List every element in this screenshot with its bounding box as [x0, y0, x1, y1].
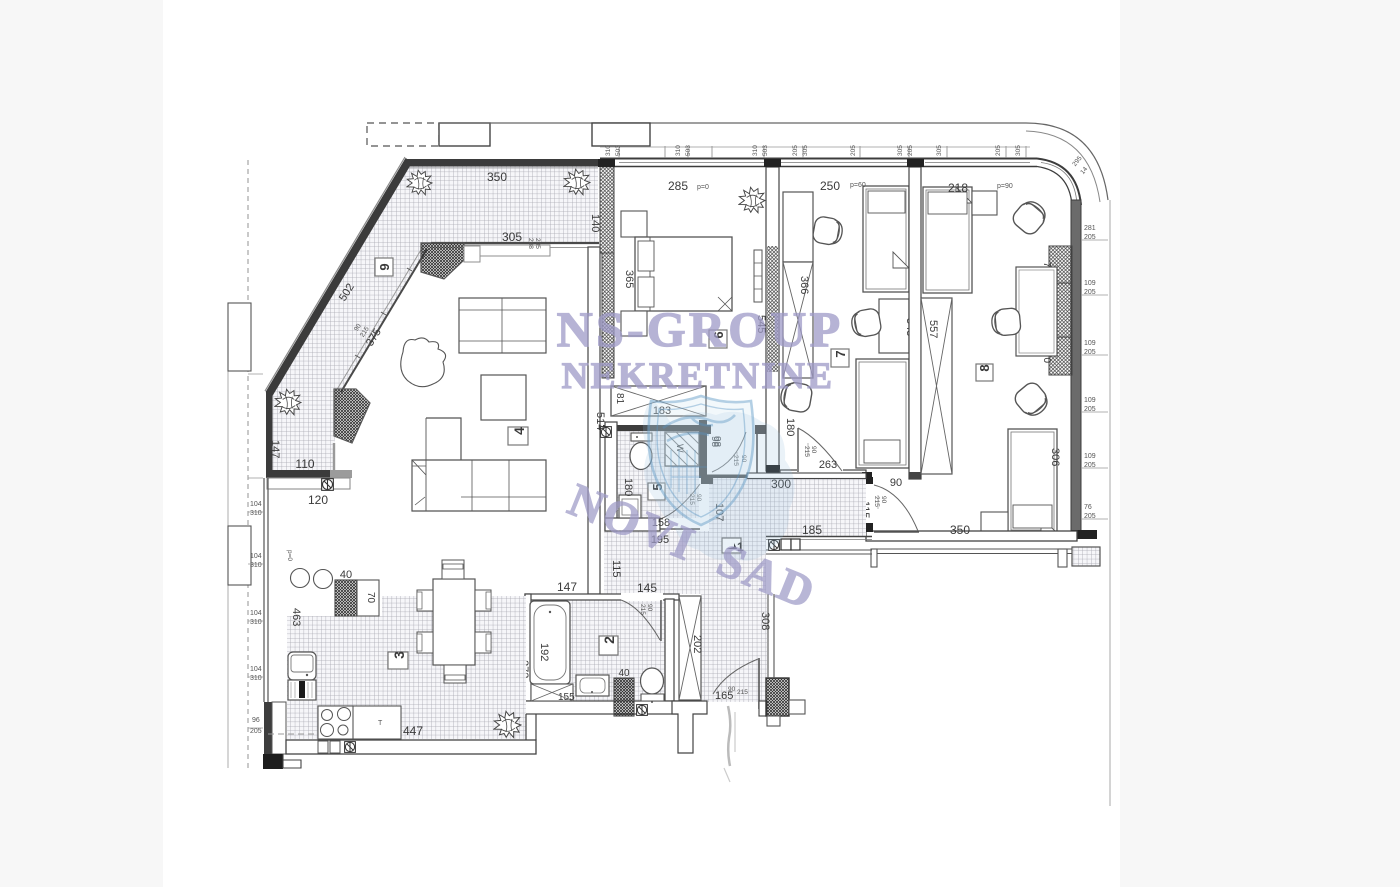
svg-text:310: 310 — [250, 619, 262, 626]
svg-text:180: 180 — [784, 418, 796, 436]
svg-text:145: 145 — [637, 581, 657, 595]
svg-text:T: T — [378, 720, 383, 727]
svg-text:110: 110 — [295, 457, 314, 471]
svg-text:p=0: p=0 — [697, 184, 709, 191]
svg-text:109: 109 — [1084, 280, 1096, 287]
svg-text:109: 109 — [1084, 397, 1096, 404]
svg-text:205: 205 — [534, 238, 541, 249]
svg-text:2: 2 — [601, 636, 617, 644]
svg-text:p=0: p=0 — [286, 550, 293, 561]
svg-text:70: 70 — [365, 592, 376, 604]
svg-text:90: 90 — [810, 446, 817, 454]
svg-text:109: 109 — [1084, 340, 1096, 347]
svg-text:NEKRETNINE: NEKRETNINE — [562, 356, 835, 397]
svg-text:90: 90 — [728, 686, 736, 693]
svg-text:305: 305 — [502, 230, 522, 244]
svg-text:305: 305 — [802, 145, 809, 156]
svg-text:205: 205 — [1084, 462, 1096, 469]
svg-text:147: 147 — [557, 580, 577, 594]
svg-text:120: 120 — [308, 493, 328, 507]
svg-text:205: 205 — [250, 728, 262, 735]
svg-text:308: 308 — [759, 612, 771, 630]
svg-text:218: 218 — [948, 181, 968, 195]
svg-text:310: 310 — [675, 145, 682, 156]
svg-text:366: 366 — [798, 276, 810, 294]
svg-text:447: 447 — [403, 724, 423, 738]
svg-text:9: 9 — [377, 263, 392, 270]
svg-text:310: 310 — [752, 145, 759, 156]
svg-text:104: 104 — [250, 610, 262, 617]
svg-text:557: 557 — [927, 320, 939, 338]
svg-text:250: 250 — [820, 179, 840, 193]
svg-text:310: 310 — [250, 675, 262, 682]
svg-text:109: 109 — [1084, 453, 1096, 460]
svg-text:205: 205 — [1084, 513, 1096, 520]
svg-text:503: 503 — [615, 145, 622, 156]
svg-text:310: 310 — [250, 510, 262, 517]
svg-text:215: 215 — [873, 496, 880, 507]
svg-text:202: 202 — [691, 635, 703, 653]
svg-text:205: 205 — [792, 145, 799, 156]
svg-text:205: 205 — [1084, 289, 1096, 296]
svg-text:305: 305 — [897, 145, 904, 156]
svg-text:205: 205 — [1084, 406, 1096, 413]
svg-text:205: 205 — [1084, 349, 1096, 356]
svg-text:205: 205 — [850, 145, 857, 156]
svg-text:115: 115 — [610, 560, 622, 578]
svg-text:365: 365 — [623, 270, 635, 288]
svg-text:185: 185 — [802, 523, 822, 537]
svg-text:463: 463 — [290, 608, 302, 626]
svg-text:215: 215 — [737, 689, 748, 696]
svg-text:215: 215 — [803, 446, 810, 457]
svg-text:350: 350 — [487, 170, 507, 184]
svg-text:281: 281 — [1084, 225, 1096, 232]
svg-text:90: 90 — [646, 604, 653, 612]
svg-text:140: 140 — [589, 214, 601, 232]
svg-text:205: 205 — [1084, 234, 1096, 241]
svg-text:205: 205 — [907, 145, 914, 156]
svg-text:205: 205 — [995, 145, 1002, 156]
svg-text:40: 40 — [340, 569, 352, 581]
svg-text:8: 8 — [977, 364, 992, 371]
svg-text:503: 503 — [685, 145, 692, 156]
svg-text:NS-GROUP: NS-GROUP — [557, 301, 844, 357]
svg-text:305: 305 — [936, 145, 943, 156]
svg-text:298: 298 — [527, 238, 534, 249]
svg-text:306: 306 — [1049, 448, 1061, 466]
svg-text:263: 263 — [819, 459, 837, 471]
svg-text:514: 514 — [594, 412, 606, 430]
svg-text:310: 310 — [605, 145, 612, 156]
svg-text:104: 104 — [250, 553, 262, 560]
svg-text:350: 350 — [950, 523, 970, 537]
svg-text:40: 40 — [618, 668, 630, 679]
svg-text:3: 3 — [391, 651, 407, 659]
svg-text:503: 503 — [762, 145, 769, 156]
svg-text:90: 90 — [880, 496, 887, 504]
svg-text:4: 4 — [511, 427, 527, 435]
svg-text:104: 104 — [250, 666, 262, 673]
svg-text:76: 76 — [1084, 504, 1092, 511]
svg-text:285: 285 — [668, 179, 688, 193]
svg-text:310: 310 — [250, 562, 262, 569]
svg-text:90: 90 — [890, 477, 902, 489]
svg-text:305: 305 — [1015, 145, 1022, 156]
svg-text:155: 155 — [558, 692, 575, 703]
svg-text:p=60: p=60 — [850, 182, 866, 189]
svg-text:p=90: p=90 — [997, 183, 1013, 190]
svg-text:96: 96 — [252, 717, 260, 724]
svg-text:215: 215 — [639, 604, 646, 615]
svg-text:104: 104 — [250, 501, 262, 508]
svg-text:147: 147 — [269, 440, 281, 458]
svg-text:192: 192 — [538, 643, 550, 661]
